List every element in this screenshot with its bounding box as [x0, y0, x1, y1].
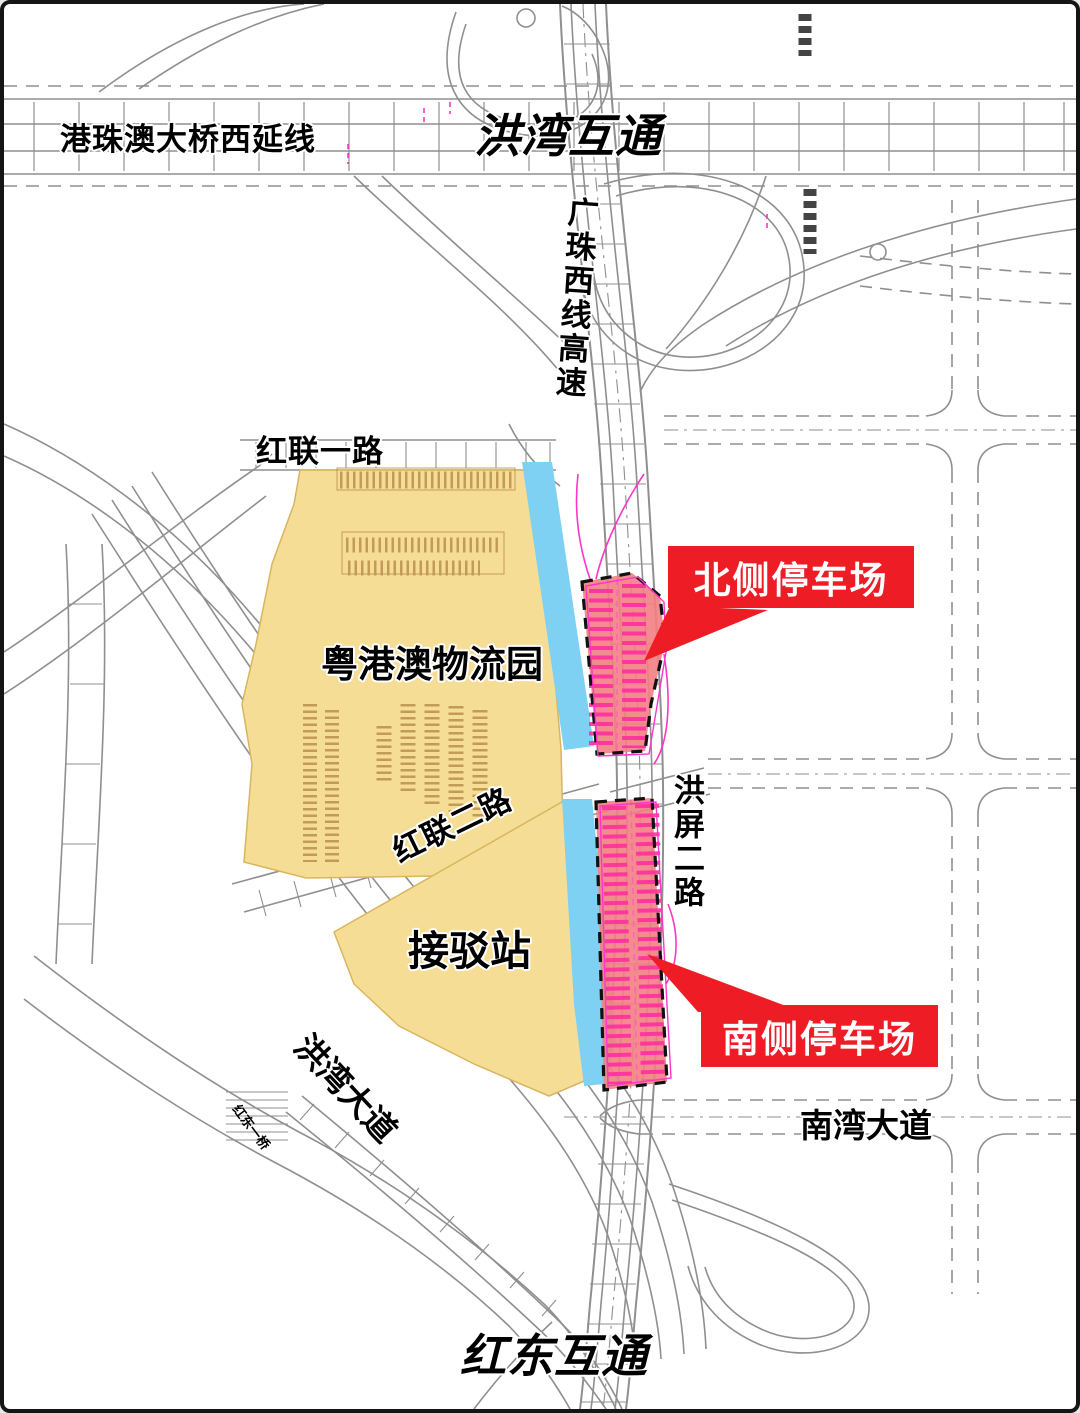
label-honglian-road-1: 红联一路 [256, 426, 384, 471]
planning-map: 港珠澳大桥西延线 洪湾互通 广珠西线高速 红联一路 粤港澳物流园 红联二路 洪屏… [0, 0, 1080, 1413]
label-hongwan-interchange: 洪湾互通 [474, 100, 662, 166]
south-callout-pointer [647, 954, 794, 1012]
map-drawing [4, 4, 1076, 1409]
label-hongdong-interchange: 红东互通 [460, 1320, 648, 1386]
label-hongping-road-2: 洪屏二路 [664, 774, 709, 919]
north-parking-callout: 北侧停车场 [668, 546, 914, 608]
hongwan-interchange-ramps [354, 6, 1076, 486]
label-nanwan-avenue: 南湾大道 [800, 1099, 932, 1147]
south-parking-callout: 南侧停车场 [701, 1005, 938, 1067]
east-grid-roads [926, 200, 1004, 1294]
label-bridge-west-extension: 港珠澳大桥西延线 [60, 114, 316, 159]
label-transfer-station: 接驳站 [408, 917, 531, 977]
label-logistics-park: 粤港澳物流园 [321, 634, 543, 688]
